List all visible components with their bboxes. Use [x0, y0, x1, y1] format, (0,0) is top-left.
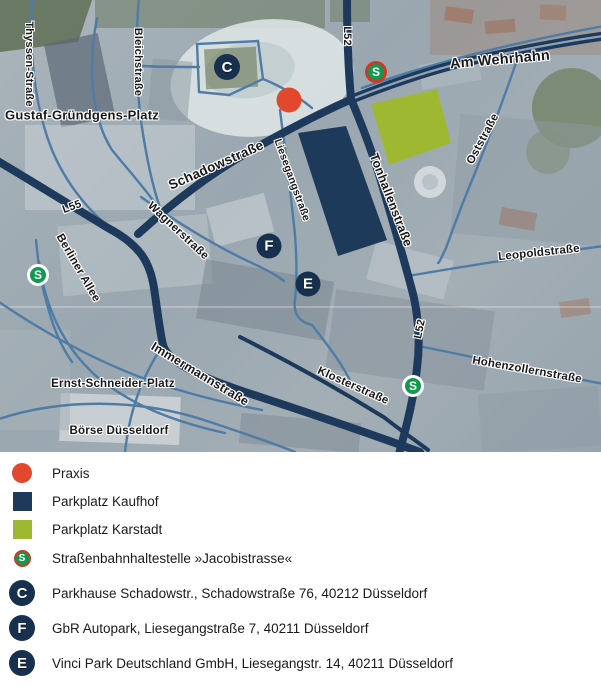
- legend-icon-slot: [0, 492, 44, 511]
- tonhalle-dome: [422, 174, 438, 190]
- legend-icon-slot: E: [0, 650, 44, 676]
- legend-label: GbR Autopark, Liesegangstraße 7, 40211 D…: [52, 621, 368, 636]
- legend-label: Praxis: [52, 466, 90, 481]
- legend-row-parkhaus-c: C Parkhause Schadowstr., Schadowstraße 7…: [0, 579, 601, 607]
- legend-row-kaufhof: Parkplatz Kaufhof: [0, 487, 601, 515]
- building-block: [239, 413, 361, 452]
- parking-e-legend-icon: E: [9, 650, 35, 676]
- legend-label: Parkhause Schadowstr., Schadowstraße 76,…: [52, 586, 427, 601]
- street-label-gustaf-gruendgens-platz: Gustaf-Gründgens-Platz: [5, 108, 159, 123]
- tram-stop-legend-icon: S: [14, 550, 31, 567]
- legend-row-parkhaus-e: E Vinci Park Deutschland GmbH, Liesegang…: [0, 649, 601, 677]
- legend-label: Straßenbahnhaltestelle »Jacobistrasse«: [52, 551, 292, 566]
- legend-icon-slot: S: [0, 550, 44, 567]
- flyer-map-page: Thyssen-Straße Gustaf-Gründgens-Platz Bl…: [0, 0, 601, 687]
- parking-marker-c: C: [214, 54, 240, 80]
- parking-marker-e: E: [296, 272, 321, 297]
- karstadt-parking-area: [371, 89, 451, 165]
- street-label-boerse-duesseldorf: Börse Düsseldorf: [69, 425, 168, 437]
- legend-row-praxis: Praxis: [0, 459, 601, 487]
- legend-row-tram-stop: S Straßenbahnhaltestelle »Jacobistrasse«: [0, 544, 601, 572]
- praxis-legend-icon: [12, 463, 32, 483]
- building-roof: [485, 19, 516, 35]
- building-roof: [540, 4, 567, 20]
- tram-stop-marker-west: S: [27, 264, 49, 286]
- kaufhof-parking-area: [298, 126, 387, 256]
- tram-stop-marker-south: S: [402, 375, 424, 397]
- legend-row-karstadt: Parkplatz Karstadt: [0, 515, 601, 543]
- legend-row-parkhaus-f: F GbR Autopark, Liesegangstraße 7, 40211…: [0, 614, 601, 642]
- road-connector: [143, 66, 199, 67]
- legend: Praxis Parkplatz Kaufhof Parkplatz Karst…: [0, 452, 601, 687]
- road-l52-north: [347, 0, 351, 99]
- karstadt-legend-icon: [13, 520, 32, 539]
- praxis-marker: [277, 88, 302, 113]
- legend-label: Parkplatz Karstadt: [52, 522, 162, 537]
- legend-icon-slot: [0, 463, 44, 483]
- map-area: Thyssen-Straße Gustaf-Gründgens-Platz Bl…: [0, 0, 601, 452]
- building-block: [478, 386, 601, 452]
- parking-marker-f: F: [257, 234, 282, 259]
- parking-c-legend-icon: C: [9, 580, 35, 606]
- boerse-building: [59, 393, 181, 445]
- street-label-l52-north: L52: [341, 26, 353, 46]
- kaufhof-legend-icon: [13, 492, 32, 511]
- legend-icon-slot: [0, 520, 44, 539]
- tram-stop-marker-wehrhahn: S: [365, 61, 387, 83]
- parking-f-legend-icon: F: [9, 615, 35, 641]
- legend-icon-slot: F: [0, 615, 44, 641]
- legend-label: Parkplatz Kaufhof: [52, 494, 159, 509]
- street-label-bleichstrasse: Bleichstraße: [132, 28, 144, 96]
- street-label-ernst-schneider-platz: Ernst-Schneider-Platz: [51, 378, 175, 390]
- street-label-thyssen-strasse: Thyssen-Straße: [23, 21, 35, 106]
- building-roof: [559, 298, 591, 318]
- legend-label: Vinci Park Deutschland GmbH, Liesegangst…: [52, 656, 453, 671]
- legend-icon-slot: C: [0, 580, 44, 606]
